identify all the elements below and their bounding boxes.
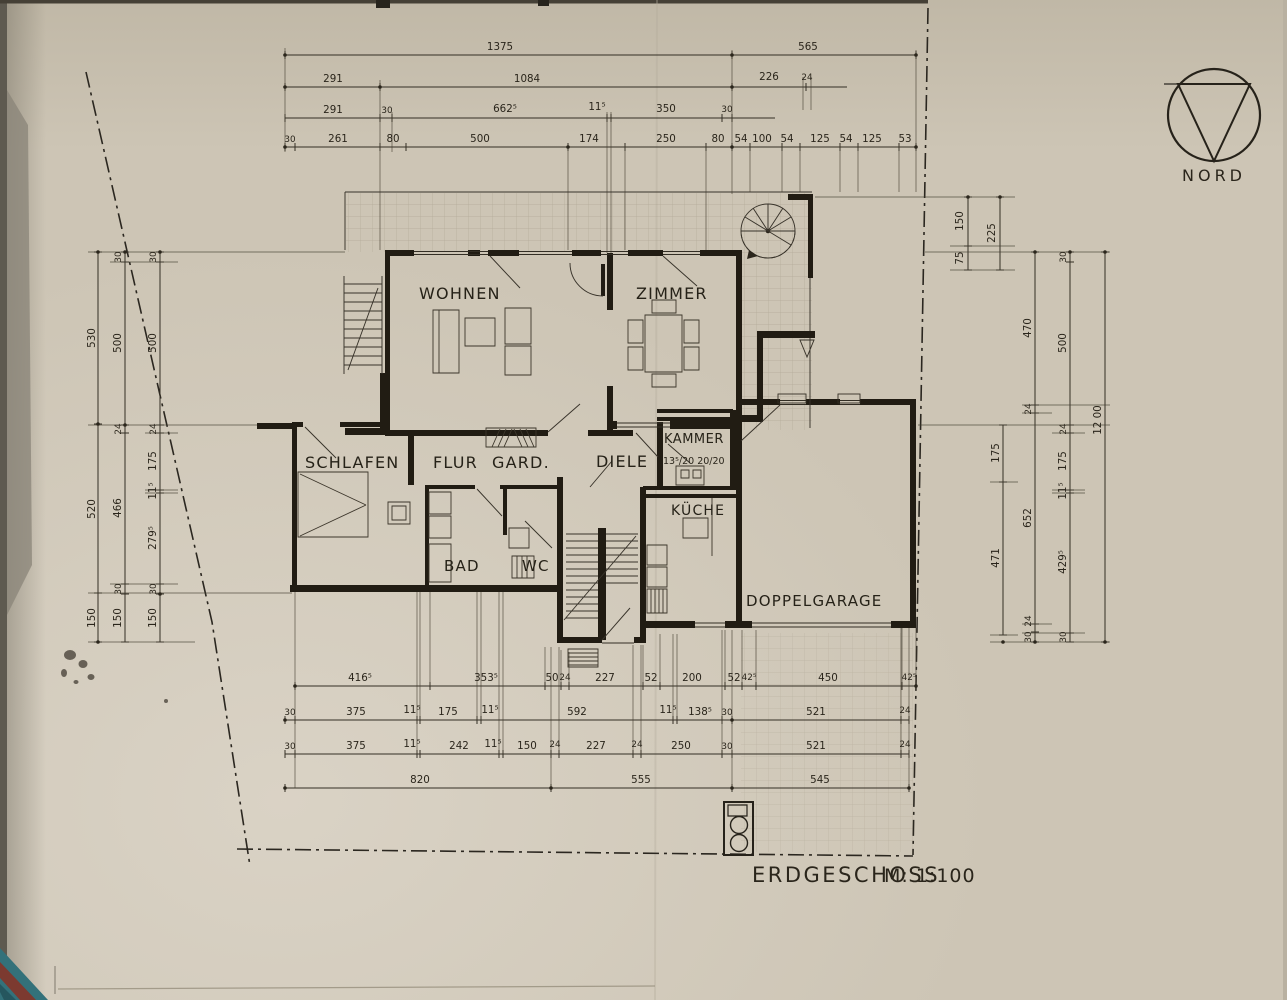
dim-label: 30 [284, 708, 296, 718]
dim-label: 530 [86, 328, 98, 348]
dim-label: 24 [114, 423, 124, 435]
dim-label: 11⁵ [403, 704, 420, 716]
dim-label: 200 [682, 672, 702, 684]
flue-dimension-note: 13⁵/20 20/20 [663, 456, 725, 467]
dim-label: 11⁵ [1057, 482, 1069, 499]
dim-label: 500 [147, 333, 159, 353]
dim-label: 75 [954, 251, 966, 264]
dim-label: 11⁵ [588, 101, 605, 113]
dim-label: 11⁵ [403, 738, 420, 750]
dim-label: 500 [470, 133, 490, 145]
sheet-scale: M: 1:100 [884, 865, 976, 887]
dim-label: 225 [986, 223, 998, 243]
dim-label: 416⁵ [348, 672, 372, 684]
dim-label: 24 [631, 740, 643, 750]
dim-label: 592 [567, 706, 587, 718]
dim-label: 24 [801, 73, 813, 83]
dim-label: 150 [112, 608, 124, 628]
dim-label: 375 [346, 740, 366, 752]
north-label: NORD [1182, 166, 1246, 185]
room-label-wohnen: WOHNEN [419, 284, 501, 303]
dim-label: 30 [114, 251, 124, 263]
dim-label: 521 [806, 706, 826, 718]
dim-label: 53 [898, 133, 911, 145]
dim-label: 520 [86, 499, 98, 519]
dim-label: 30 [721, 105, 733, 115]
dim-label: 11⁵ [484, 738, 501, 750]
dim-label: 652 [1022, 508, 1034, 528]
dim-label: 471 [990, 548, 1002, 568]
floorplan-sheet: 1375 565 291 1084 226 24 291 30 662⁵ 11⁵… [0, 0, 1287, 1000]
top-edge-clip-right [538, 0, 549, 6]
dim-label: 42⁵ [742, 673, 757, 683]
dim-label: 500 [112, 333, 124, 353]
dim-label: 353⁵ [474, 672, 498, 684]
dim-label: 138⁵ [688, 706, 712, 718]
title-block: ERDGESCHOSS M: 1:100 [752, 863, 976, 887]
dim-label: 820 [410, 774, 430, 786]
dim-label: 54 [839, 133, 852, 145]
dim-label: 250 [656, 133, 676, 145]
dim-label: 175 [438, 706, 458, 718]
dim-label: 175 [990, 443, 1002, 463]
dim-label: 291 [323, 73, 343, 85]
dim-label: 24 [149, 423, 159, 435]
dim-label: 24 [1024, 403, 1034, 415]
dim-label: 11⁵ [147, 482, 159, 499]
floorplan-photo: 1375 565 291 1084 226 24 291 30 662⁵ 11⁵… [0, 0, 1287, 1000]
dim-label: 261 [328, 133, 348, 145]
dim-label: 30 [114, 583, 124, 595]
dim-label: 80 [386, 133, 399, 145]
dim-label: 226 [759, 71, 779, 83]
dim-label: 30 [1059, 631, 1069, 643]
dim-label: 565 [798, 41, 818, 53]
dim-label: 80 [711, 133, 724, 145]
dim-label: 52 [644, 672, 657, 684]
room-label-zimmer: ZIMMER [636, 284, 708, 303]
dim-label: 174 [579, 133, 599, 145]
dim-label: 30 [1024, 631, 1034, 643]
dim-label: 12 00 [1092, 405, 1104, 434]
dim-label: 175 [147, 451, 159, 471]
room-label-diele: DIELE [596, 452, 648, 471]
dim-label: 54 [734, 133, 747, 145]
room-label-schlafen: SCHLAFEN [305, 453, 399, 472]
room-label-kueche: KÜCHE [671, 501, 725, 519]
dim-label: 30 [284, 742, 296, 752]
photo-edge-shadow [7, 90, 32, 615]
room-label-kammer: KAMMER [664, 432, 724, 447]
dim-label: 279⁵ [147, 526, 159, 550]
dim-label: 1084 [514, 73, 540, 85]
dim-label: 30 [721, 742, 733, 752]
dim-label: 24 [559, 673, 571, 683]
dim-label: 30 [149, 251, 159, 263]
dim-label: 545 [810, 774, 830, 786]
dim-label: 242 [449, 740, 469, 752]
dim-label: 24 [549, 740, 561, 750]
dim-label: 466 [112, 498, 124, 518]
dim-label: 450 [818, 672, 838, 684]
driveway-grid [741, 633, 913, 852]
dim-label: 291 [323, 104, 343, 116]
dim-label: 227 [595, 672, 615, 684]
dim-label: 30 [149, 583, 159, 595]
dim-label: 227 [586, 740, 606, 752]
dim-label: 52 [727, 672, 740, 684]
dim-label: 24 [1059, 423, 1069, 435]
dim-label: 500 [1057, 333, 1069, 353]
dim-label: 50 [545, 672, 558, 684]
dim-label: 150 [86, 608, 98, 628]
dim-label: 150 [147, 608, 159, 628]
dim-label: 470 [1022, 318, 1034, 338]
dim-label: 555 [631, 774, 651, 786]
room-label-flur: FLUR [433, 453, 478, 472]
dim-label: 24 [899, 706, 911, 716]
dim-label: 11⁵ [481, 704, 498, 716]
room-label-doppelgarage: DOPPELGARAGE [746, 592, 882, 610]
dim-label: 30 [721, 708, 733, 718]
dim-label: 662⁵ [493, 103, 517, 115]
dim-label: 1375 [487, 41, 513, 53]
dim-label: 250 [671, 740, 691, 752]
dim-label: 24 [1024, 615, 1034, 627]
dim-label: 30 [1059, 251, 1069, 263]
dim-label: 429⁵ [1057, 550, 1069, 574]
dim-label: 125 [810, 133, 830, 145]
dim-label: 42⁵ [902, 673, 917, 683]
top-edge-clip-left [376, 0, 390, 8]
dim-label: 100 [752, 133, 772, 145]
room-label-wc: WC [522, 557, 550, 575]
dim-label: 375 [346, 706, 366, 718]
dim-label: 24 [899, 740, 911, 750]
dim-label: 54 [780, 133, 793, 145]
dim-label: 521 [806, 740, 826, 752]
dim-label: 150 [517, 740, 537, 752]
dim-label: 150 [954, 211, 966, 231]
dim-label: 125 [862, 133, 882, 145]
room-label-gard: GARD. [492, 453, 550, 472]
dim-label: 175 [1057, 451, 1069, 471]
room-label-bad: BAD [444, 557, 480, 575]
dim-label: 11⁵ [659, 704, 676, 716]
dim-label: 30 [284, 135, 296, 145]
dim-label: 350 [656, 103, 676, 115]
dim-label: 30 [381, 106, 393, 116]
